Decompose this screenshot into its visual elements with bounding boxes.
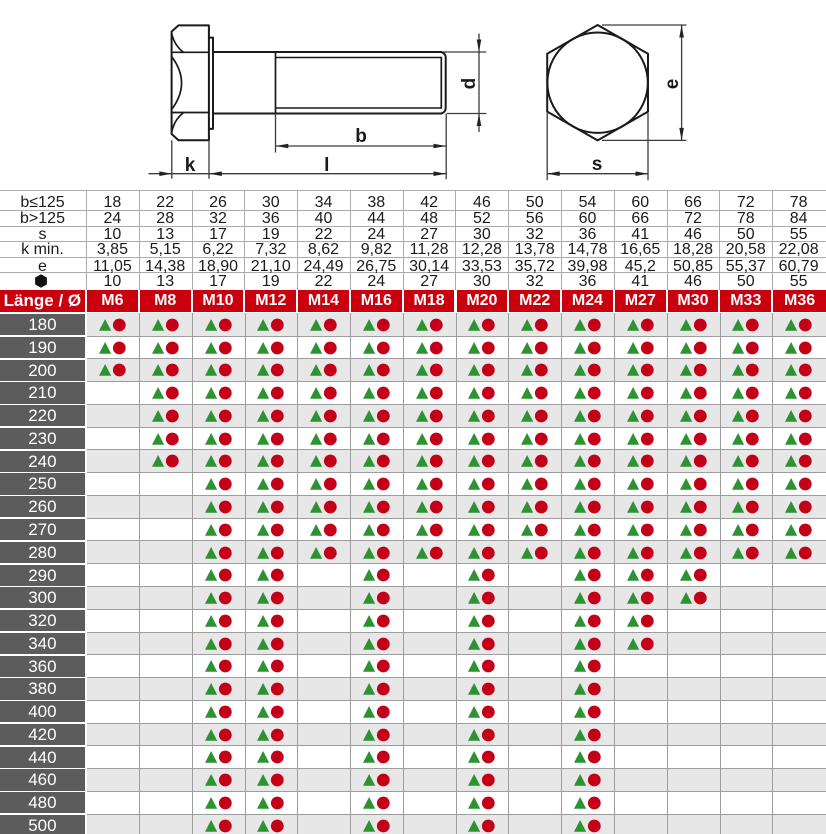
svg-text:l: l: [324, 155, 329, 176]
svg-text:d: d: [459, 78, 480, 90]
svg-text:b: b: [355, 126, 367, 147]
svg-text:e: e: [662, 79, 683, 90]
svg-text:k: k: [185, 155, 196, 176]
svg-text:s: s: [592, 154, 603, 175]
